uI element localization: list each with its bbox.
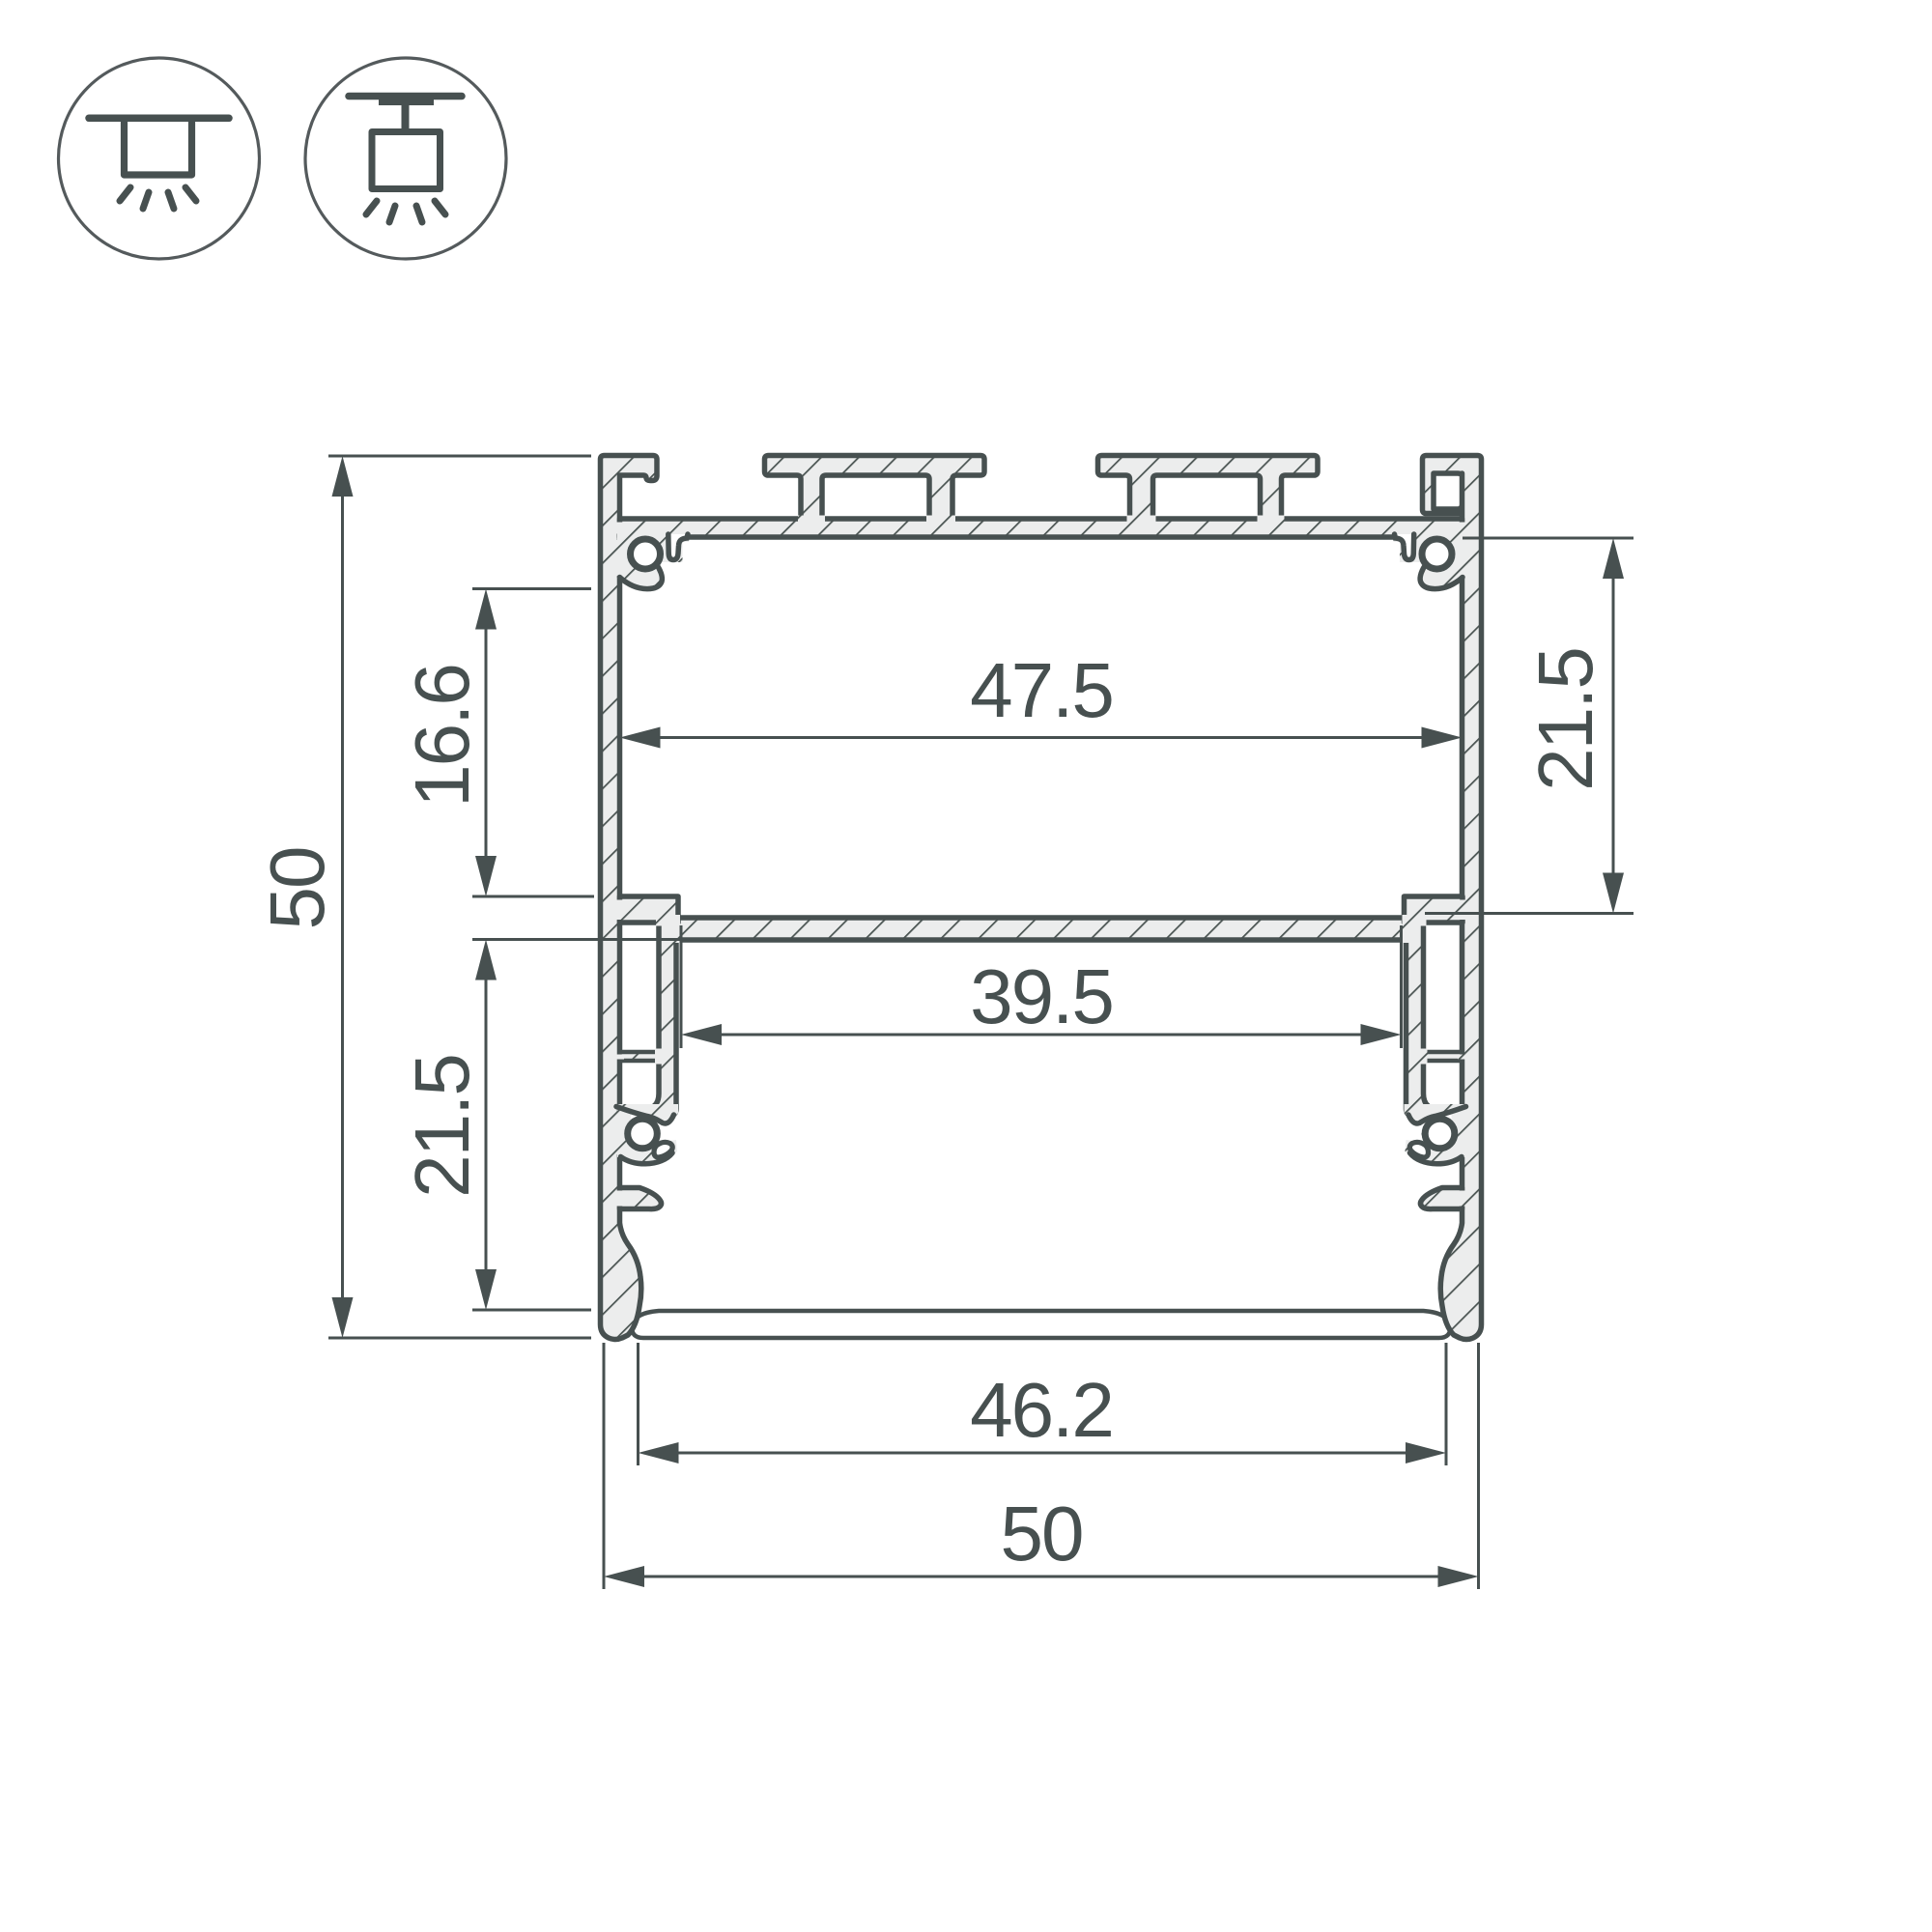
svg-text:39.5: 39.5 xyxy=(970,953,1113,1039)
svg-text:16.6: 16.6 xyxy=(399,665,485,808)
svg-text:50: 50 xyxy=(254,848,340,930)
svg-text:46.2: 46.2 xyxy=(970,1367,1113,1453)
svg-text:50: 50 xyxy=(1001,1491,1083,1577)
svg-text:47.5: 47.5 xyxy=(970,647,1113,733)
svg-text:21.5: 21.5 xyxy=(399,1055,485,1198)
svg-text:21.5: 21.5 xyxy=(1522,648,1608,791)
